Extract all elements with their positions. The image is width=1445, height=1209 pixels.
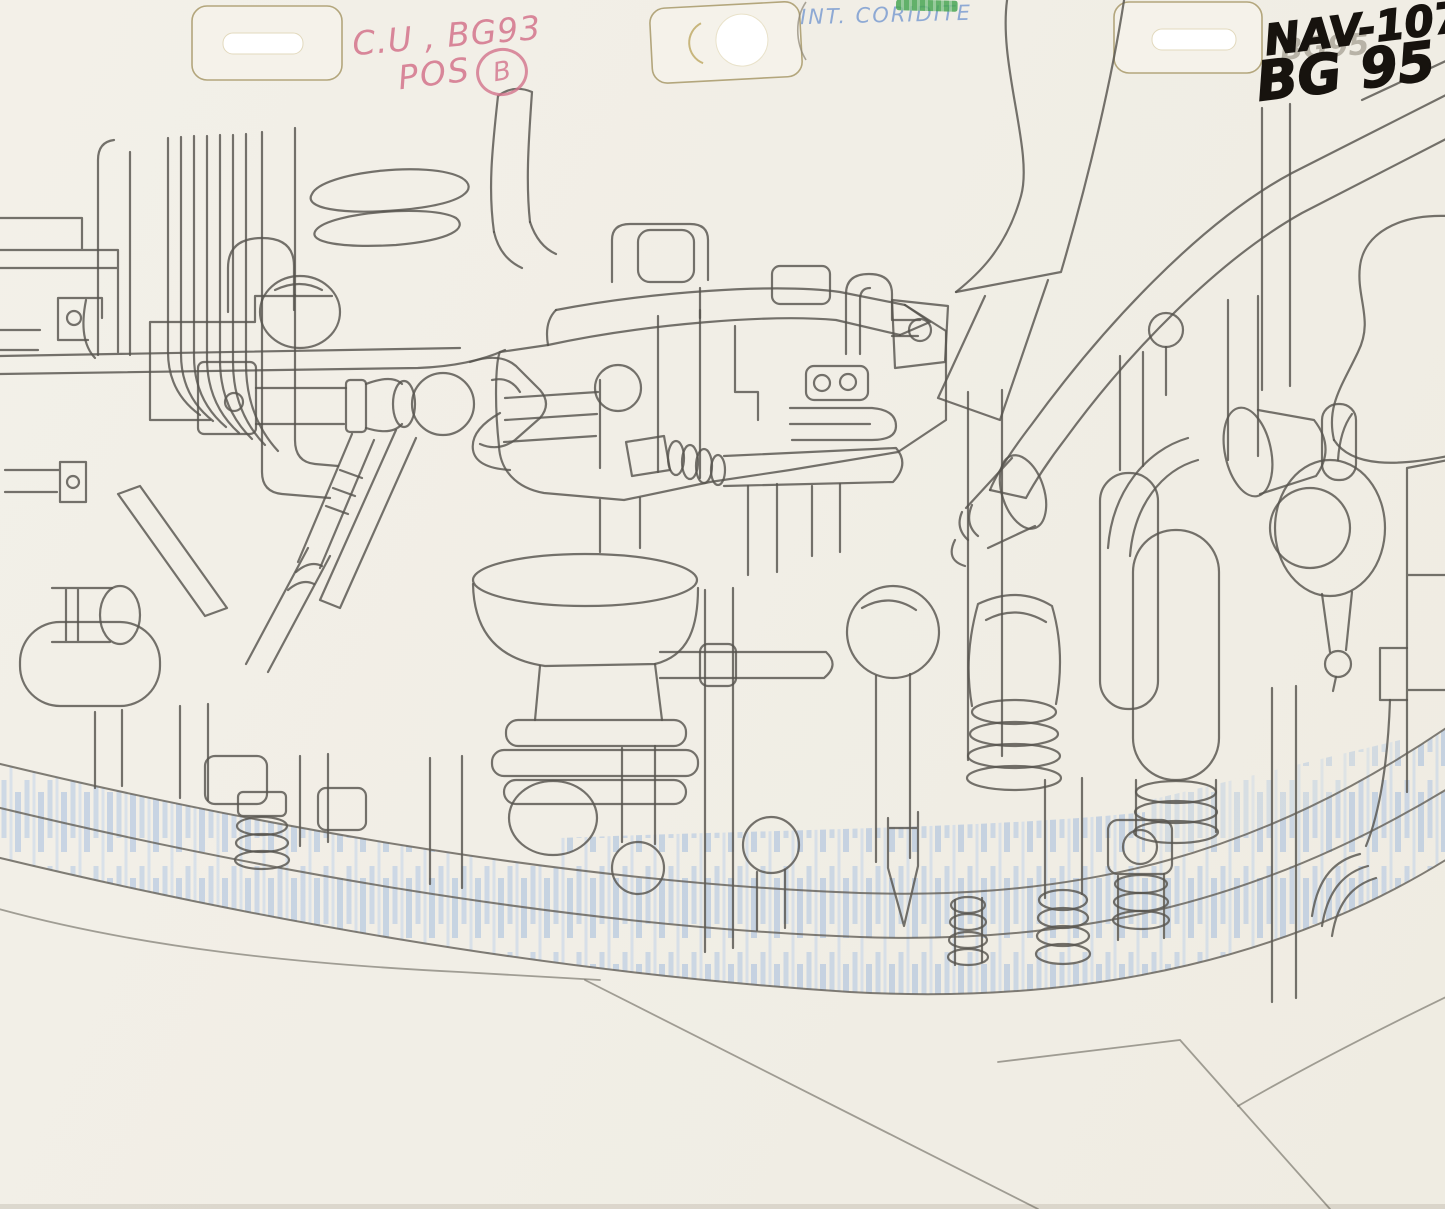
bowl-pedestal xyxy=(473,498,833,855)
diagonal-beams xyxy=(938,0,1445,498)
animation-paper-sheet: C.U , BG93 POS B INT. CORIDITE BG95 NAV-… xyxy=(0,0,1445,1209)
corrugated-hose xyxy=(626,436,902,575)
left-cylinder-and-pill xyxy=(5,462,160,706)
peg-hole-left xyxy=(192,6,342,80)
pencil-drawing-canvas xyxy=(0,0,1445,1209)
peg-hole-right xyxy=(1114,2,1262,73)
center-machine xyxy=(473,89,948,500)
left-braces xyxy=(118,430,416,672)
blue-pencil-shading xyxy=(0,724,1445,994)
pipe-bundle xyxy=(83,128,338,498)
left-axle-assembly xyxy=(58,276,546,447)
flat-lozenges xyxy=(311,169,469,246)
peg-hole-center xyxy=(649,1,803,84)
